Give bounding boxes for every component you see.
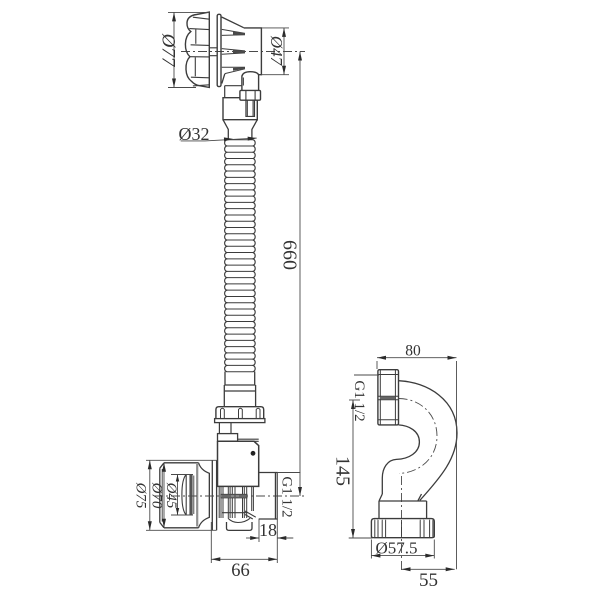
svg-text:Ø47: Ø47 xyxy=(267,35,286,67)
svg-text:Ø70: Ø70 xyxy=(148,482,164,509)
svg-text:Ø57.5: Ø57.5 xyxy=(375,539,417,558)
svg-text:G1 1/2: G1 1/2 xyxy=(279,476,295,517)
svg-text:660: 660 xyxy=(279,240,301,270)
svg-text:Ø75: Ø75 xyxy=(133,482,149,509)
svg-text:66: 66 xyxy=(231,561,250,581)
svg-text:80: 80 xyxy=(405,343,421,360)
svg-text:18: 18 xyxy=(259,520,277,540)
svg-text:145: 145 xyxy=(332,456,354,486)
svg-text:Ø77: Ø77 xyxy=(158,33,179,68)
svg-text:Ø45: Ø45 xyxy=(163,482,179,509)
svg-text:55: 55 xyxy=(419,570,438,591)
